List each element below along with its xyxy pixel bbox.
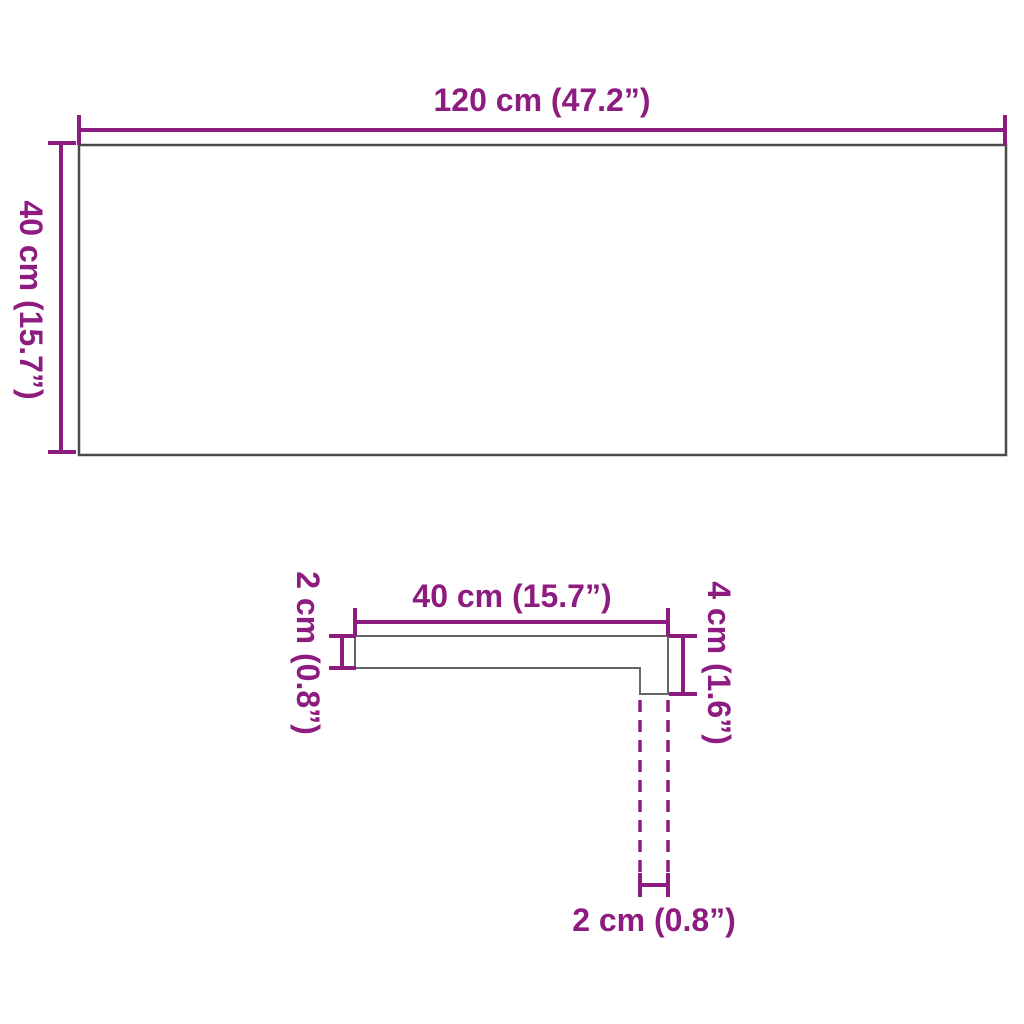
nose-width-dimension — [640, 873, 668, 897]
profile-width-label: 40 cm (15.7”) — [412, 580, 611, 612]
profile-height-label: 4 cm (1.6”) — [703, 581, 735, 745]
nose-projection-dashed-lines — [640, 700, 668, 876]
profile-thickness-label: 2 cm (0.8”) — [292, 571, 324, 735]
panel-outline — [79, 145, 1006, 455]
panel-width-label: 120 cm (47.2”) — [433, 84, 650, 116]
nose-width-label: 2 cm (0.8”) — [572, 904, 736, 936]
dimension-diagram: 120 cm (47.2”) 40 cm (15.7”) 40 cm (15.7… — [0, 0, 1024, 1024]
profile-thickness-dimension — [329, 636, 356, 668]
panel-height-dimension — [48, 143, 76, 452]
diagram-linework — [0, 0, 1024, 1024]
profile-outline — [355, 636, 668, 694]
panel-height-label: 40 cm (15.7”) — [15, 200, 47, 399]
panel-width-dimension — [79, 115, 1005, 145]
profile-height-dimension — [669, 636, 697, 694]
